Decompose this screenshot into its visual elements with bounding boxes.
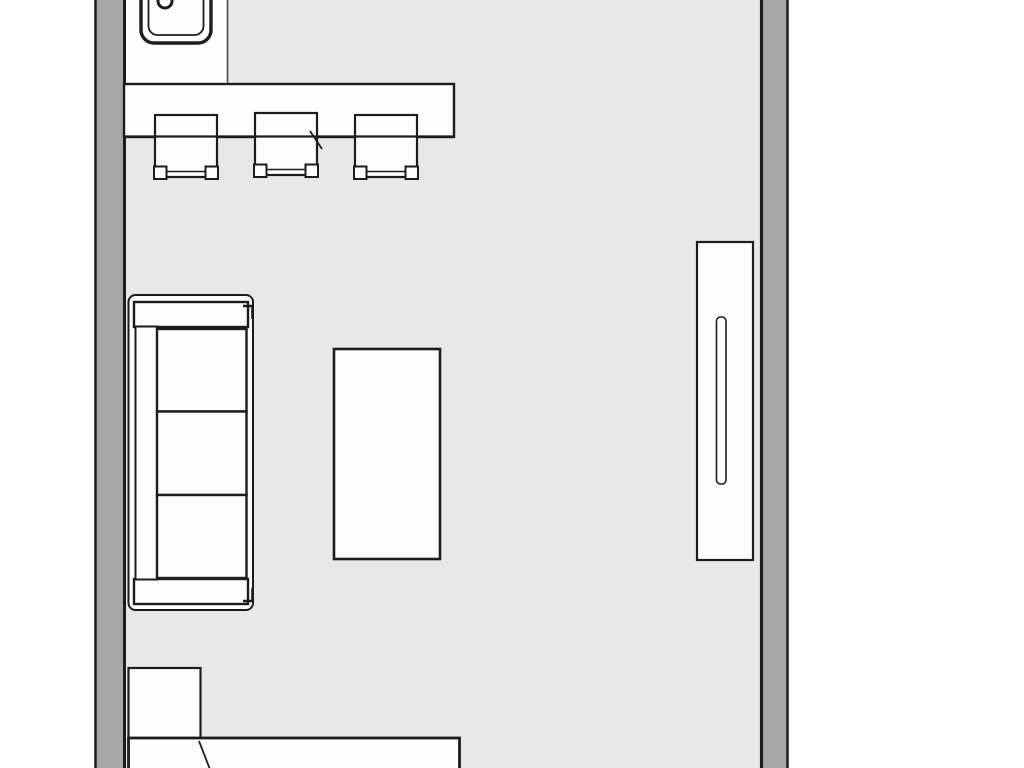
- wall-right: [761, 0, 788, 768]
- floor-plan-svg: [0, 0, 1024, 768]
- kitchen-sink[interactable]: [141, 0, 211, 43]
- bar-stool-2[interactable]: [254, 113, 318, 177]
- wall-left: [96, 0, 125, 768]
- wardrobe[interactable]: [697, 242, 753, 560]
- bar-stool-1[interactable]: [154, 115, 218, 179]
- sofa[interactable]: [129, 295, 254, 610]
- floor-plan-canvas: [0, 0, 1024, 768]
- coffee-table[interactable]: [334, 349, 440, 559]
- nightstand[interactable]: [129, 668, 201, 739]
- bed[interactable]: [129, 738, 460, 768]
- bar-stool-3[interactable]: [354, 115, 418, 179]
